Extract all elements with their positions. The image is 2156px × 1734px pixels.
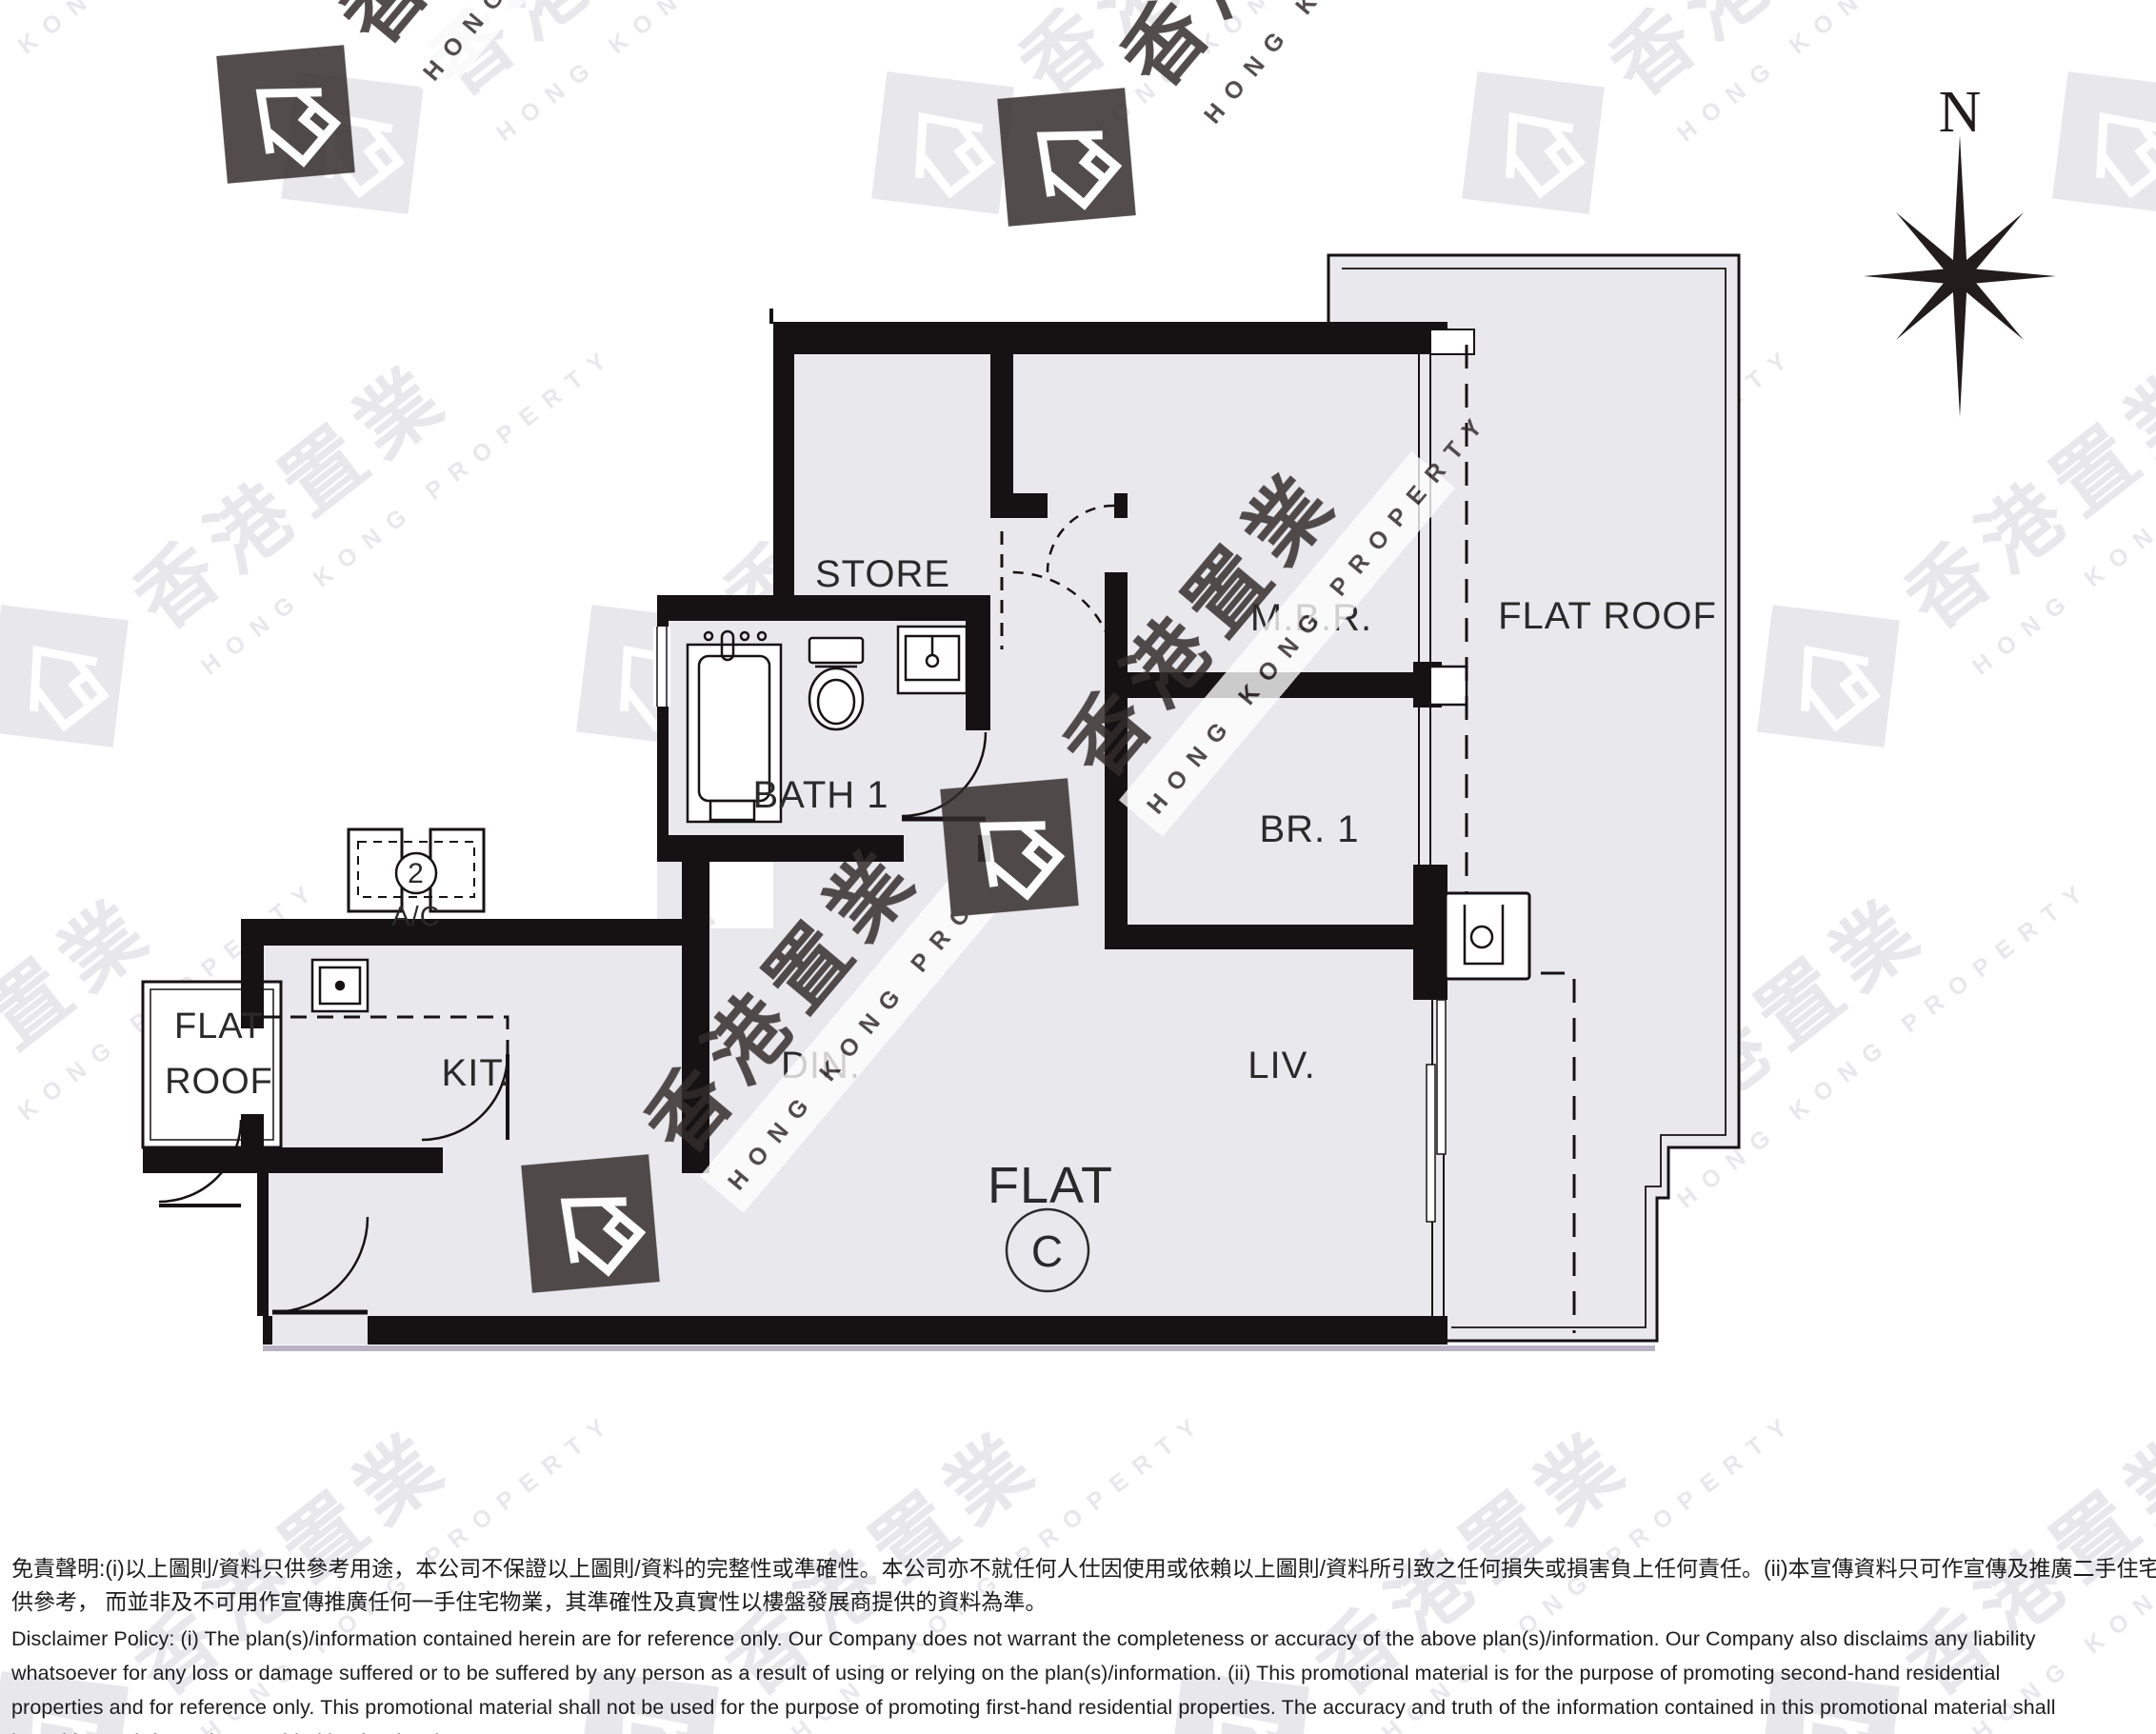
room-label-bath1: BATH 1 — [752, 774, 888, 816]
floorplan-canvas: 香港置業 HONG KONG PROPERTY — [0, 0, 2156, 1734]
bottom-shadow-line — [263, 1345, 1655, 1351]
ac-platform: 2 A/C — [349, 829, 484, 932]
disclaimer-zh-line1: 免責聲明:(i)以上圖則/資料只供參考用途，本公司不保證以上圖則/資料的完整性或… — [11, 1552, 2148, 1585]
bath-sink-icon — [898, 627, 967, 693]
washer-icon — [1446, 893, 1529, 979]
disclaimer-block: 免責聲明:(i)以上圖則/資料只供參考用途，本公司不保證以上圖則/資料的完整性或… — [11, 1552, 2148, 1619]
room-label-store: STORE — [815, 553, 950, 595]
compass-north-icon: N — [1864, 80, 2056, 417]
room-label-flat-roof-main: FLAT ROOF — [1498, 595, 1717, 637]
unit-label-flat: FLAT — [988, 1157, 1113, 1214]
disclaimer-block-en: Disclaimer Policy: (i) The plan(s)/infor… — [11, 1622, 2148, 1734]
room-label-kit: KIT. — [442, 1052, 511, 1094]
disclaimer-en-line2: whatsoever for any loss or damage suffer… — [11, 1656, 2148, 1690]
kitchen-stove-icon — [312, 960, 368, 1011]
disclaimer-en-line3: properties and for reference only. This … — [11, 1690, 2148, 1724]
unit-letter: C — [1031, 1226, 1064, 1276]
ac-number: 2 — [408, 858, 425, 889]
compass-n-label: N — [1939, 80, 1982, 145]
room-label-flat-roof-small-1: FLAT — [174, 1007, 264, 1046]
column-cap — [1428, 667, 1467, 705]
floorplan-page: 香港置業 HONG KONG PROPERTY — [0, 0, 2156, 1734]
ac-label: A/C — [391, 902, 440, 932]
disclaimer-en-line1: Disclaimer Policy: (i) The plan(s)/infor… — [11, 1622, 2148, 1656]
room-label-liv: LIV. — [1248, 1045, 1315, 1086]
room-label-flat-roof-small-2: ROOF — [165, 1062, 273, 1102]
disclaimer-en-line4: be subject to information provided by th… — [11, 1724, 2148, 1734]
disclaimer-zh-line2: 供參考， 而並非及不可用作宣傳推廣任何一手住宅物業，其準確性及真實性以樓盤發展商… — [11, 1585, 2148, 1619]
toilet-icon — [809, 638, 863, 729]
bath-window — [653, 627, 670, 707]
room-label-br1: BR. 1 — [1259, 808, 1359, 850]
